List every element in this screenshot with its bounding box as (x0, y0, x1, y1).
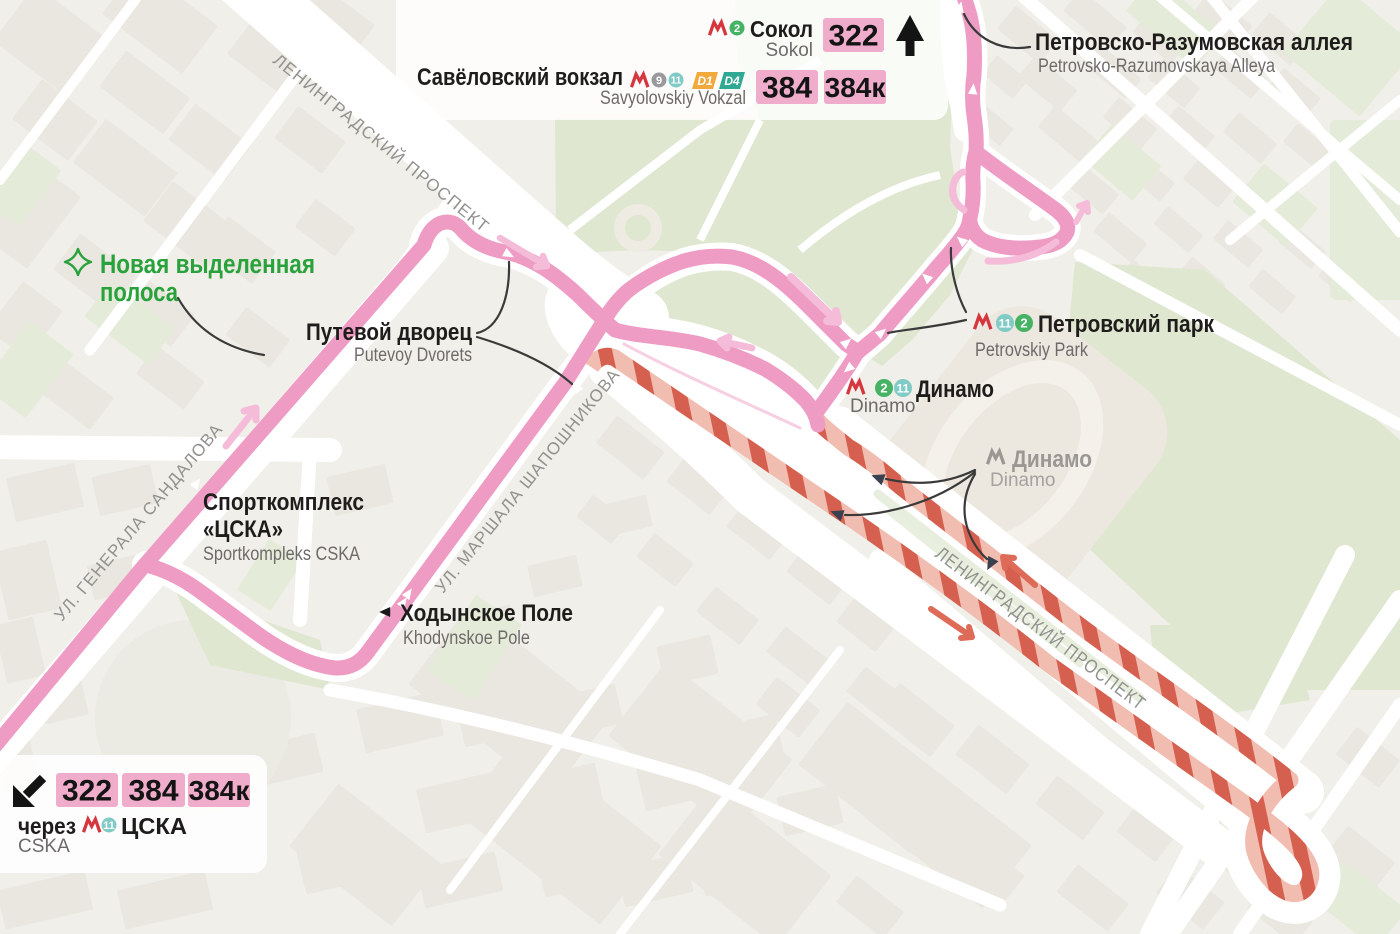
svg-text:Петровский парк: Петровский парк (1038, 311, 1215, 338)
svg-text:2: 2 (1020, 316, 1027, 331)
svg-text:Спорткомплекс: Спорткомплекс (203, 489, 364, 516)
svg-text:Sportkompleks CSKA: Sportkompleks CSKA (203, 544, 360, 565)
svg-text:Петровско-Разумовская аллея: Петровско-Разумовская аллея (1035, 29, 1353, 56)
svg-text:полоса: полоса (100, 277, 179, 307)
svg-text:384: 384 (128, 775, 178, 808)
svg-text:Савёловский вокзал: Савёловский вокзал (417, 64, 623, 91)
svg-text:Динамо: Динамо (1012, 446, 1092, 473)
svg-text:D1: D1 (697, 74, 713, 88)
svg-text:384: 384 (762, 72, 812, 105)
svg-text:322: 322 (828, 20, 878, 53)
svg-text:Dinamo: Dinamo (990, 470, 1055, 491)
svg-text:Petrovskiy Park: Petrovskiy Park (975, 340, 1088, 361)
svg-text:D4: D4 (724, 74, 740, 88)
svg-text:2: 2 (880, 381, 887, 396)
svg-text:Putevoy Dvorets: Putevoy Dvorets (354, 345, 472, 366)
svg-text:Сокол: Сокол (750, 16, 813, 42)
svg-text:Динамо: Динамо (916, 376, 994, 403)
svg-text:11: 11 (999, 316, 1012, 330)
svg-text:Ходынское Поле: Ходынское Поле (400, 600, 573, 627)
svg-text:11: 11 (103, 820, 115, 832)
svg-text:9: 9 (656, 75, 662, 87)
svg-text:Путевой дворец: Путевой дворец (306, 319, 472, 346)
svg-text:CSKA: CSKA (18, 836, 70, 857)
svg-text:Sokol: Sokol (765, 40, 813, 61)
svg-text:322: 322 (62, 775, 112, 808)
svg-text:Новая выделенная: Новая выделенная (100, 249, 315, 279)
svg-text:ЦСКА: ЦСКА (121, 813, 187, 839)
svg-text:Petrovsko-Razumovskaya Alleya: Petrovsko-Razumovskaya Alleya (1038, 56, 1275, 77)
svg-text:«ЦСКА»: «ЦСКА» (203, 516, 283, 543)
svg-text:384к: 384к (825, 72, 887, 103)
svg-text:11: 11 (897, 381, 910, 395)
svg-text:Dinamo: Dinamo (850, 396, 915, 417)
svg-text:Savyolovskiy Vokzal: Savyolovskiy Vokzal (600, 88, 746, 109)
svg-text:11: 11 (671, 76, 682, 87)
svg-text:2: 2 (734, 23, 740, 35)
svg-text:Khodynskoe Pole: Khodynskoe Pole (403, 628, 530, 649)
svg-text:384к: 384к (189, 775, 251, 806)
